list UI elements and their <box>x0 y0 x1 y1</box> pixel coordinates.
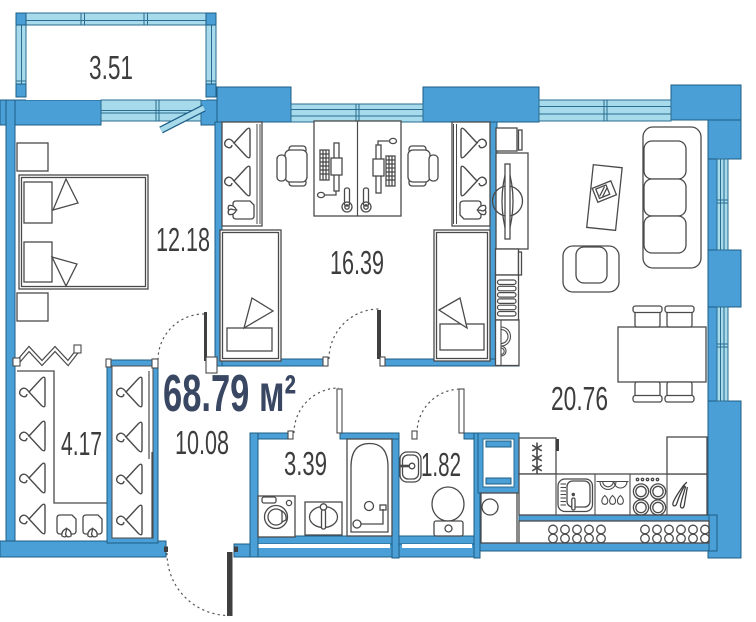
svg-text:16.39: 16.39 <box>330 244 384 281</box>
svg-text:3.51: 3.51 <box>89 49 133 86</box>
svg-text:20.76: 20.76 <box>551 380 608 417</box>
svg-text:68.79 м²: 68.79 м² <box>163 365 296 423</box>
svg-text:4.17: 4.17 <box>61 425 102 462</box>
svg-text:3.39: 3.39 <box>284 445 327 482</box>
svg-text:12.18: 12.18 <box>156 221 210 258</box>
svg-text:10.08: 10.08 <box>175 424 229 461</box>
svg-text:1.82: 1.82 <box>421 446 461 483</box>
